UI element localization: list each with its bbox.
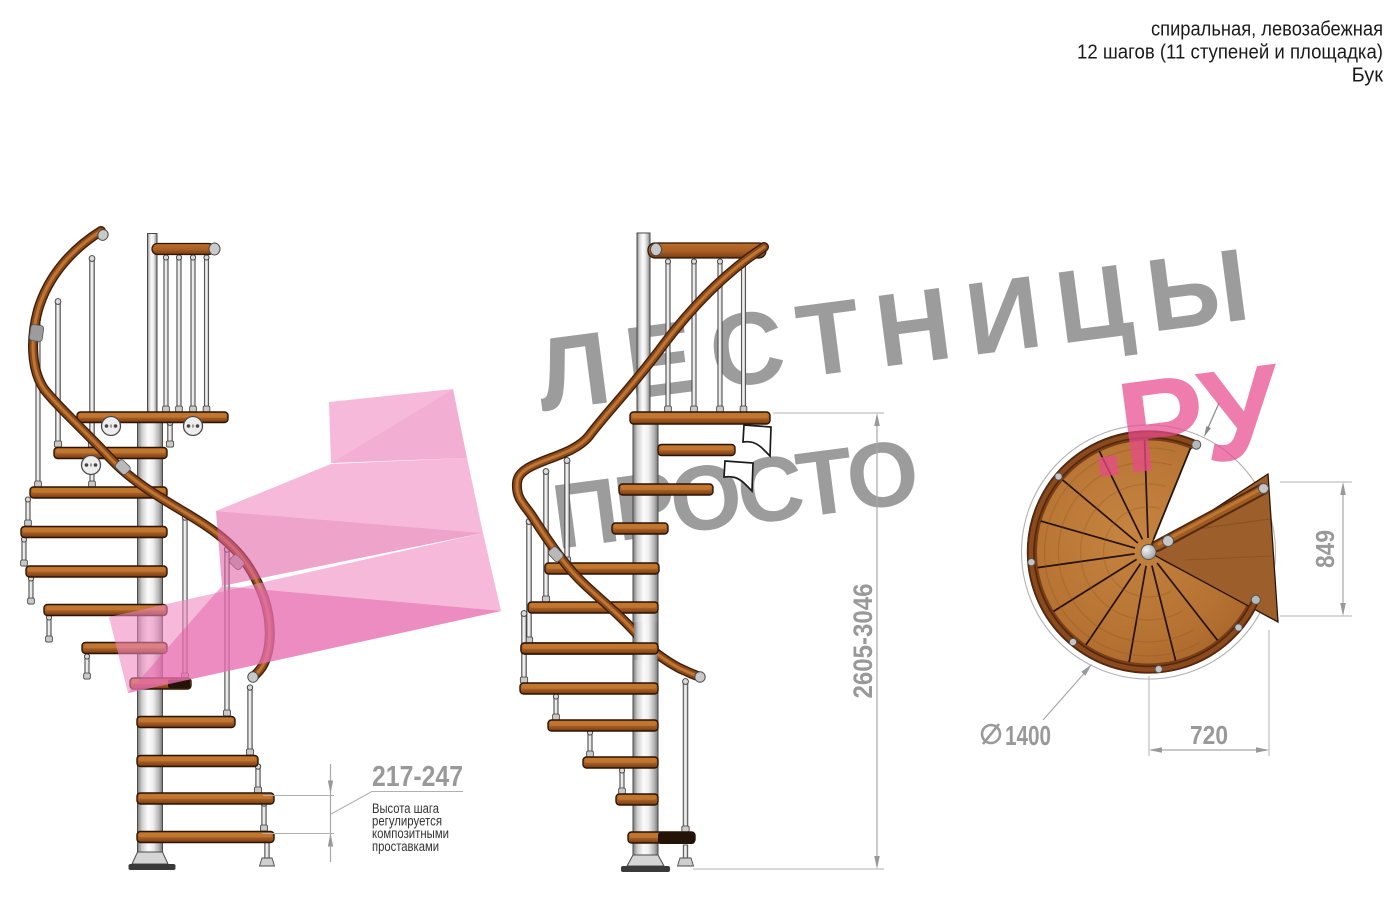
svg-text:спиральная, левозабежная: спиральная, левозабежная: [1151, 19, 1383, 41]
svg-text:1400: 1400: [1005, 720, 1051, 751]
svg-text:849: 849: [1310, 530, 1340, 568]
svg-text:проставками: проставками: [372, 839, 439, 854]
svg-text:ПРОСТО: ПРОСТО: [546, 420, 924, 569]
svg-text:2605-3046: 2605-3046: [848, 584, 878, 699]
svg-text:720: 720: [1190, 720, 1228, 750]
svg-text:12 шагов (11 ступеней и площад: 12 шагов (11 ступеней и площадка): [1077, 42, 1383, 64]
svg-text:Бук: Бук: [1352, 65, 1384, 87]
svg-text:217-247: 217-247: [372, 761, 463, 793]
svg-text:.РУ: .РУ: [1077, 335, 1292, 506]
